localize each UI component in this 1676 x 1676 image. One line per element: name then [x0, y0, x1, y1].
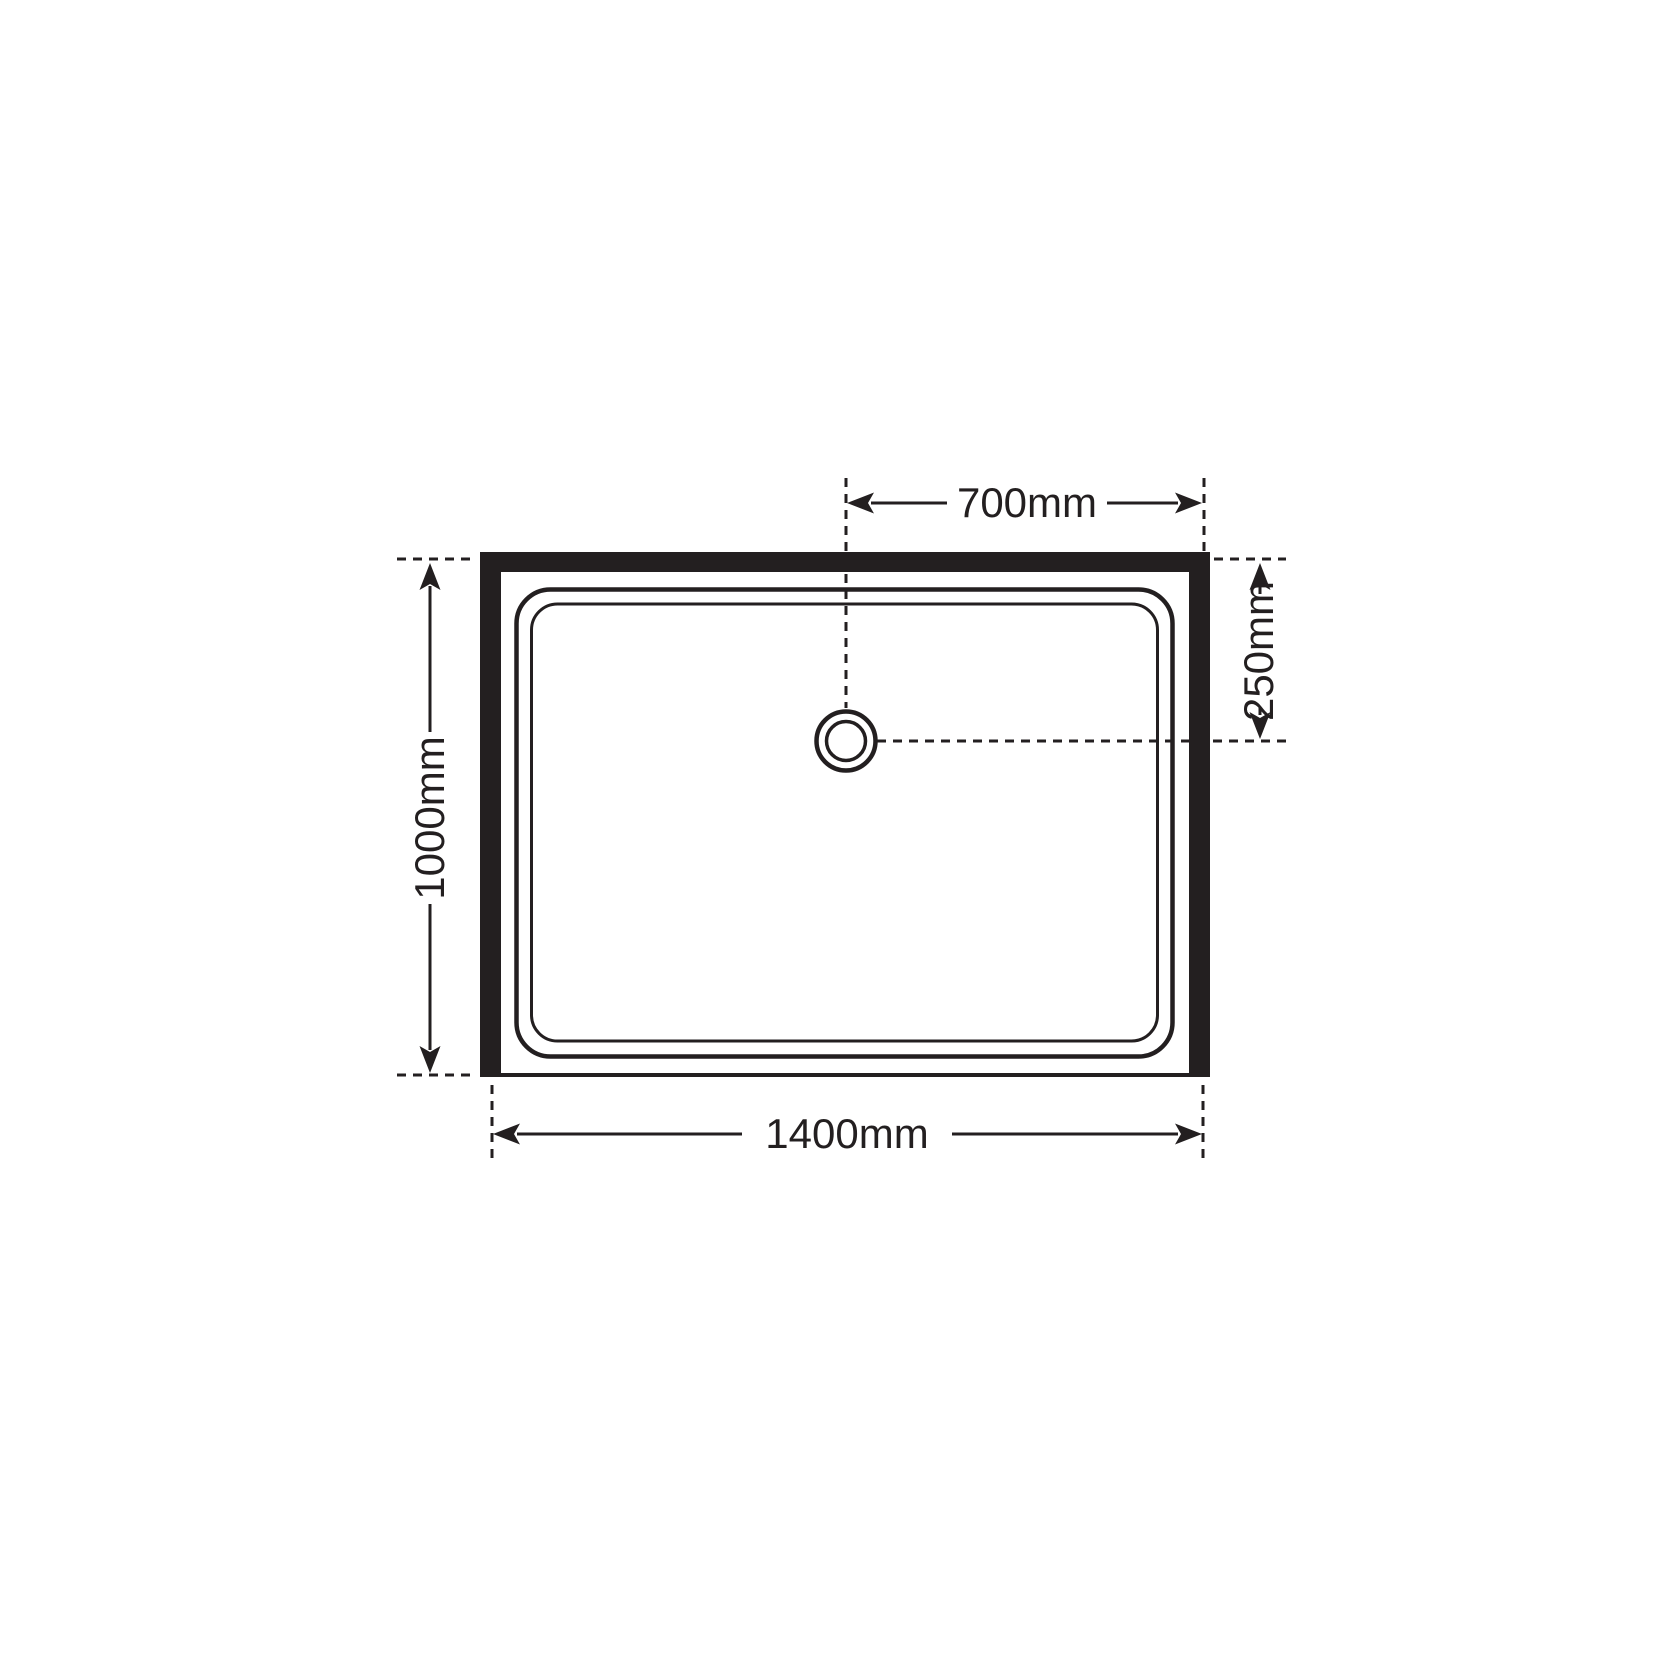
dimension-250mm: 250mm: [1235, 563, 1282, 739]
arrowhead-right-icon: [1175, 493, 1202, 514]
dimension-1400mm: 1400mm: [493, 1110, 1202, 1157]
shower-tray-plan-page: 700mm 250mm 1000mm 1400mm: [0, 0, 1676, 1676]
wall-left: [480, 552, 501, 1077]
drain-inner-ring: [827, 722, 866, 761]
arrowhead-left-icon: [493, 1124, 520, 1145]
dimension-1000mm: 1000mm: [406, 563, 453, 1073]
wall-right: [1189, 552, 1210, 1077]
shower-tray-plan-diagram: 700mm 250mm 1000mm 1400mm: [0, 0, 1676, 1676]
dim-label-250mm: 250mm: [1235, 581, 1282, 721]
dim-label-1000mm: 1000mm: [406, 736, 453, 899]
dimension-700mm: 700mm: [847, 479, 1202, 526]
dim-label-1400mm: 1400mm: [765, 1110, 928, 1157]
wall-top: [480, 552, 1210, 572]
arrowhead-left-icon: [847, 493, 874, 514]
open-edge-line: [480, 1073, 1210, 1077]
arrowhead-up-icon: [420, 563, 441, 590]
drain: [817, 712, 876, 771]
arrowhead-right-icon: [1175, 1124, 1202, 1145]
arrowhead-down-icon: [420, 1046, 441, 1073]
dim-label-700mm: 700mm: [957, 479, 1097, 526]
